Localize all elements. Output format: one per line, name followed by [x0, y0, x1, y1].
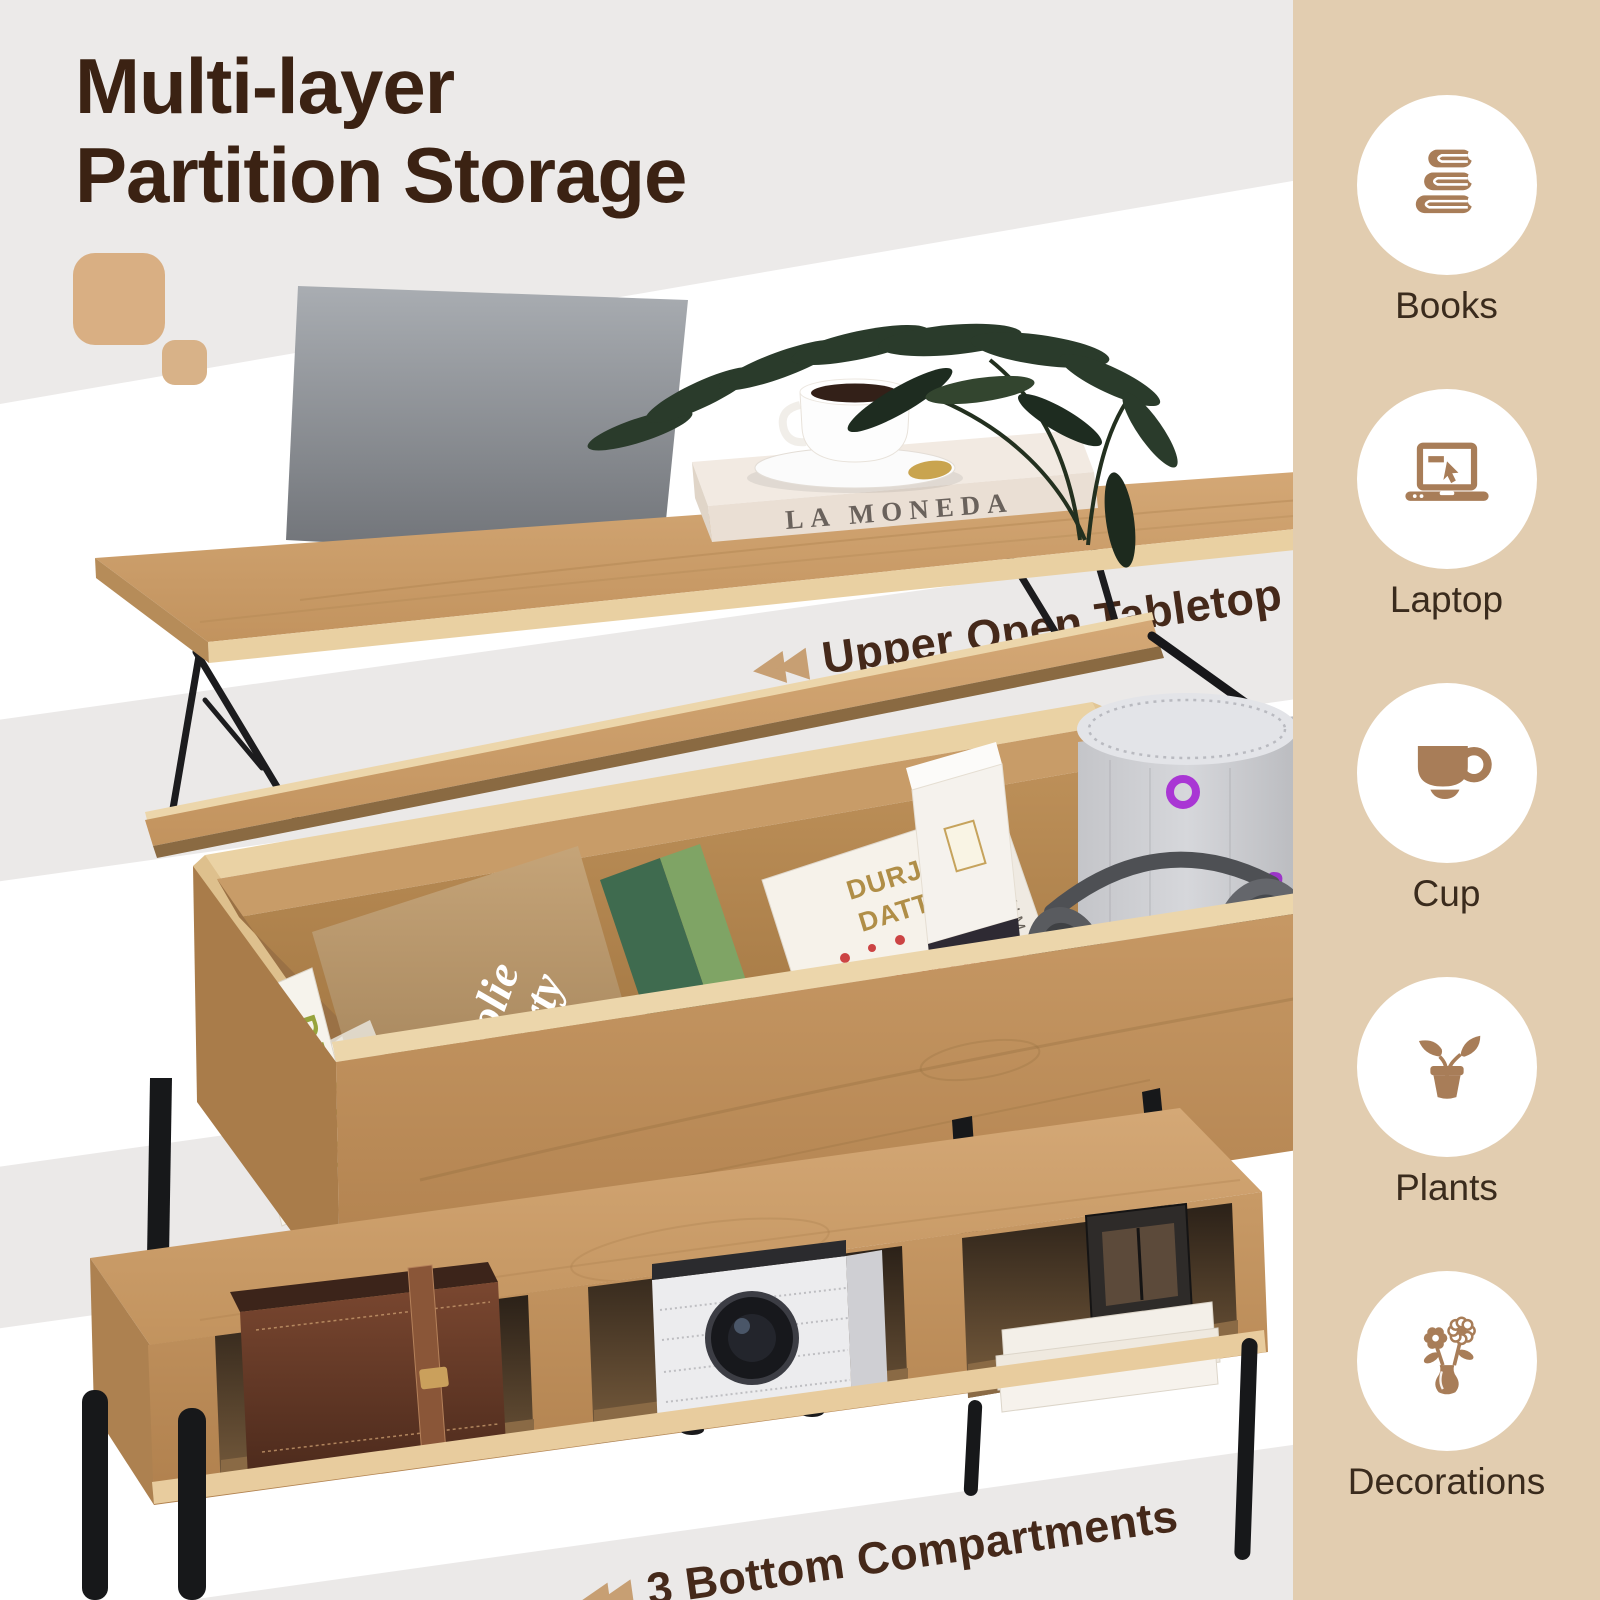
- sidebar-item-books: Books: [1357, 95, 1537, 327]
- laptop-icon: [1395, 427, 1499, 531]
- plants-icon: [1395, 1015, 1499, 1119]
- sidebar-label: Laptop: [1390, 579, 1503, 621]
- page-title: Multi-layer Partition Storage: [75, 42, 686, 220]
- decorations-icon: [1395, 1309, 1499, 1413]
- sidebar-item-laptop: Laptop: [1357, 389, 1537, 621]
- sidebar-item-decorations: Decorations: [1348, 1271, 1545, 1503]
- sidebar-label: Decorations: [1348, 1461, 1545, 1503]
- accent-square-large: [73, 253, 165, 345]
- sidebar-label: Cup: [1413, 873, 1481, 915]
- product-infographic: ◀◀ Upper Open Tabletop ◀◀ Hidden Storage…: [0, 0, 1600, 1600]
- feature-sidebar: Books Laptop: [1293, 0, 1600, 1600]
- cup-icon: [1395, 721, 1499, 825]
- books-icon: [1395, 133, 1499, 237]
- title-line-1: Multi-layer: [75, 42, 686, 131]
- accent-square-small: [162, 340, 207, 385]
- sidebar-item-cup: Cup: [1357, 683, 1537, 915]
- title-line-2: Partition Storage: [75, 131, 686, 220]
- sidebar-label: Books: [1395, 285, 1498, 327]
- sidebar-item-plants: Plants: [1357, 977, 1537, 1209]
- sidebar-label: Plants: [1395, 1167, 1498, 1209]
